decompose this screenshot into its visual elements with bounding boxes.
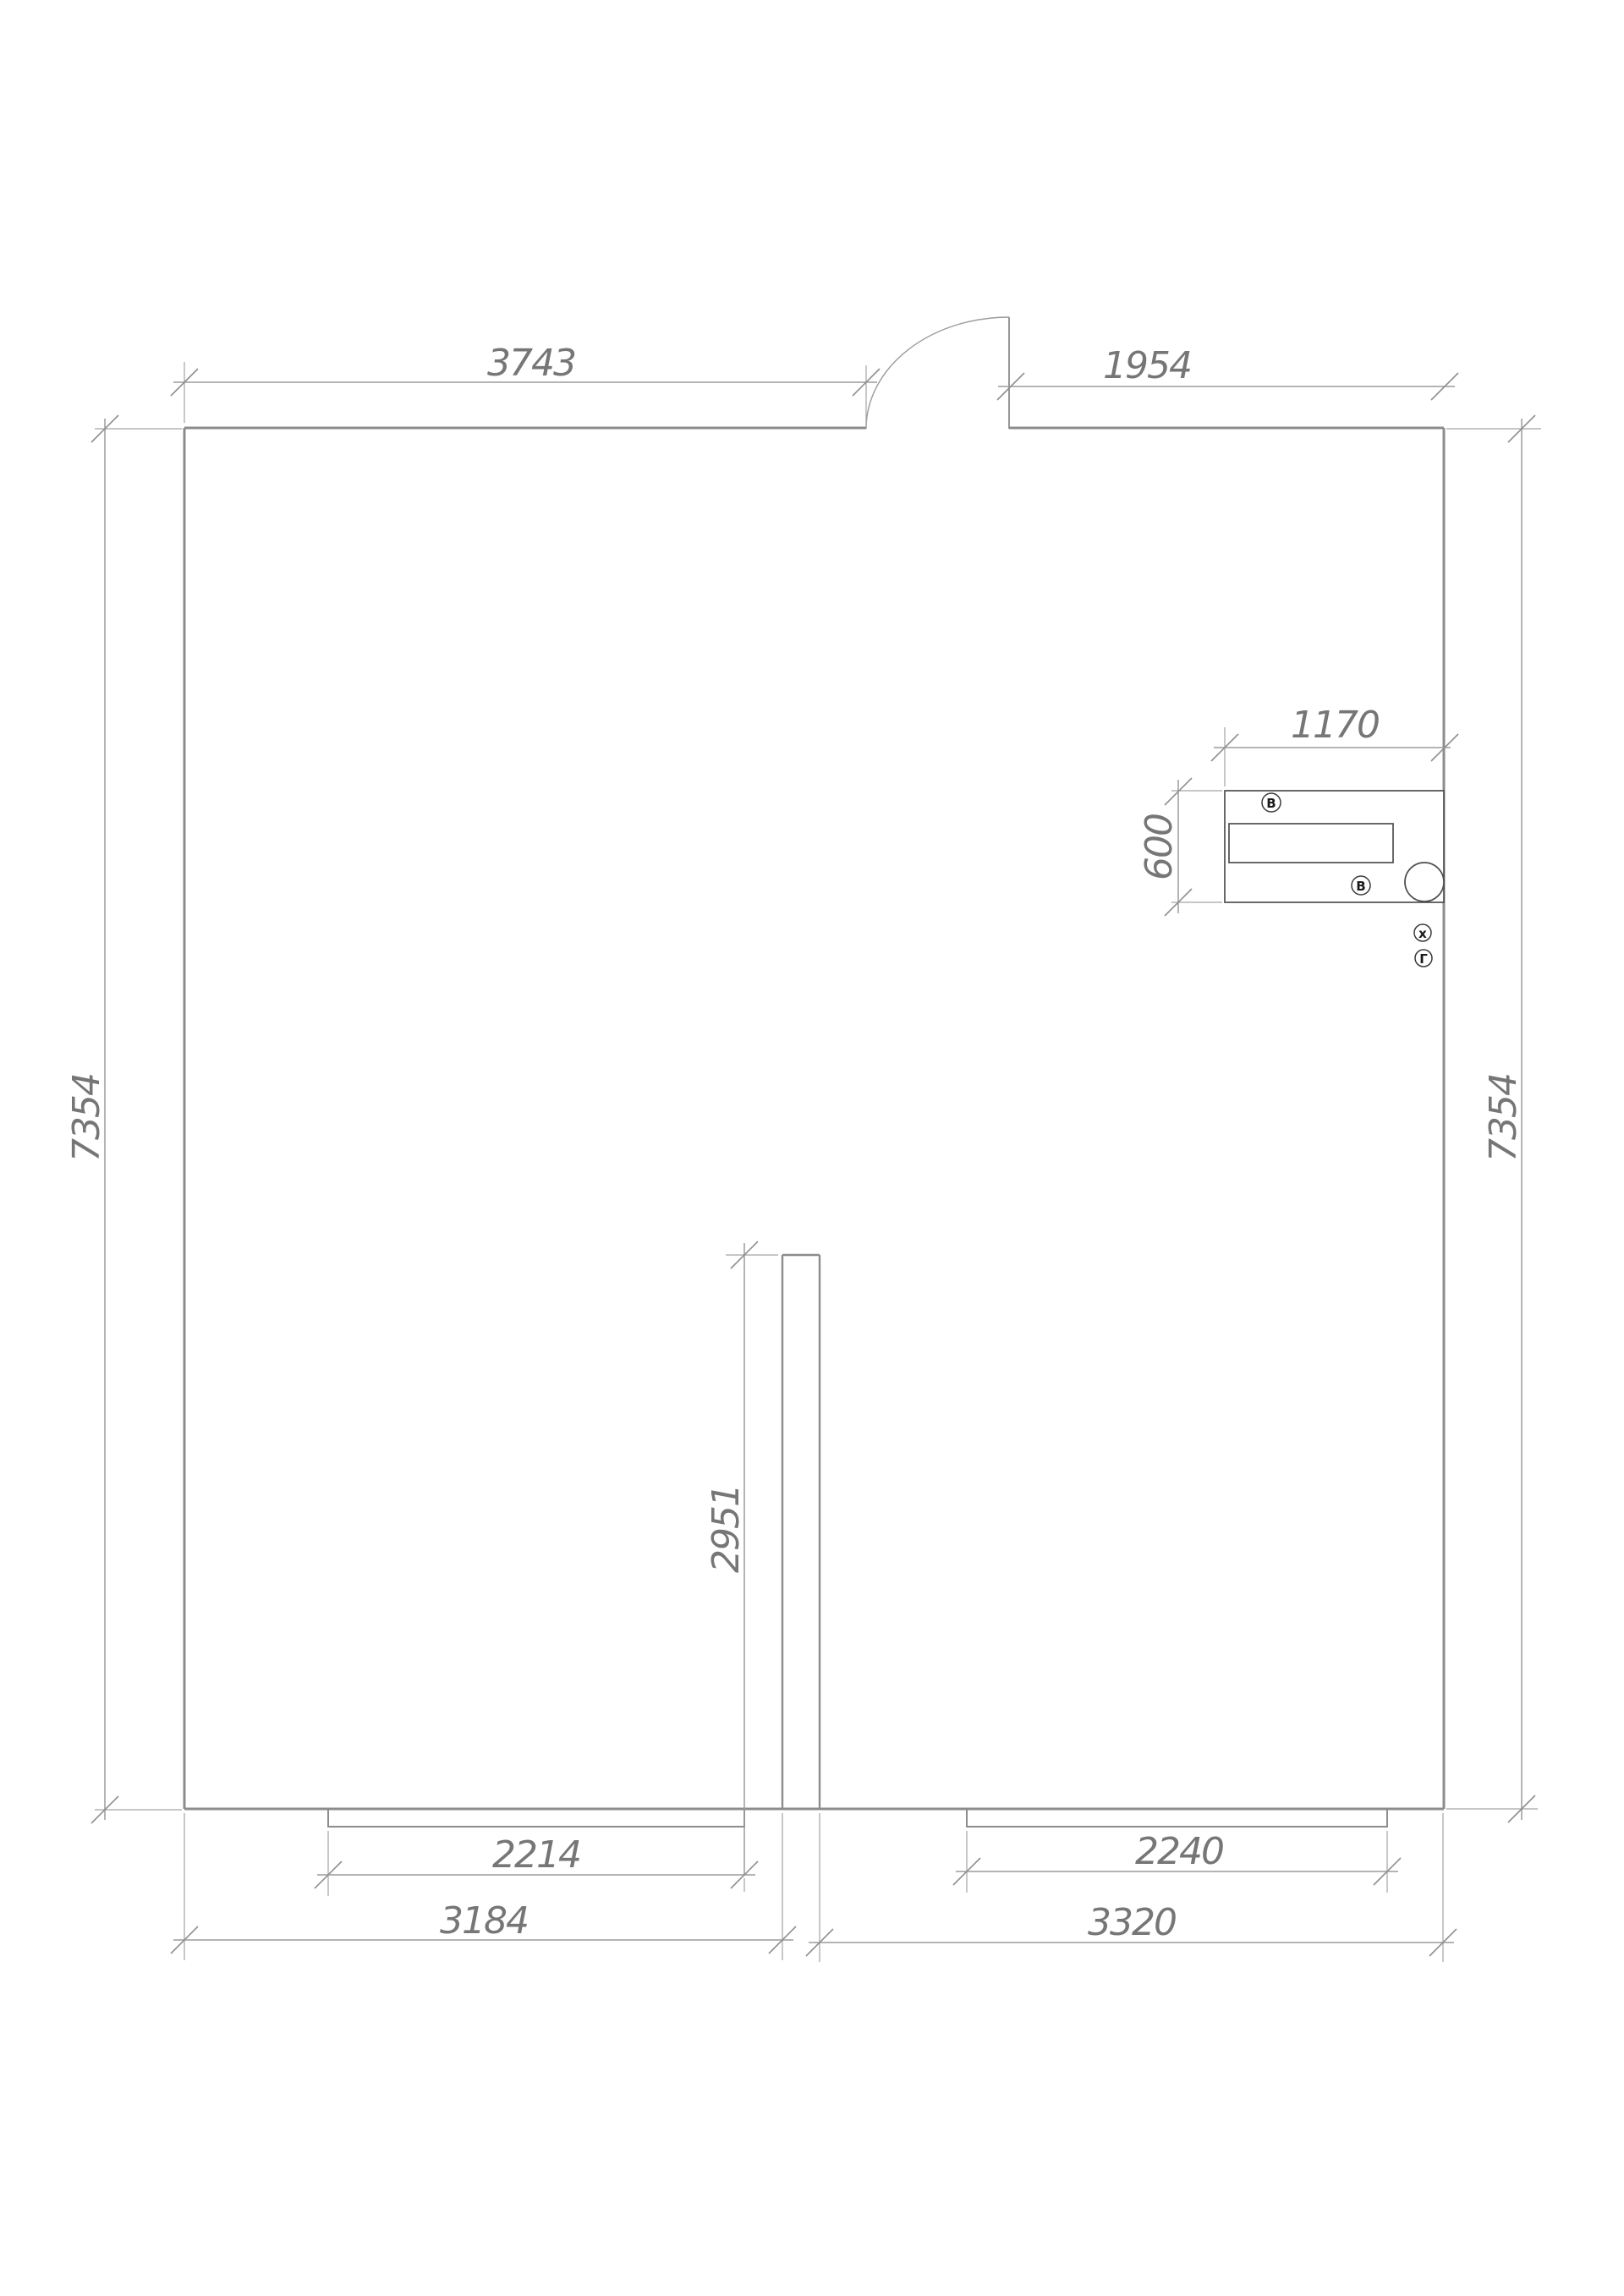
dim-label-left-wall: 7354 [65,1074,108,1162]
utility-marker-water-1: В [1262,793,1281,812]
dim-label-counter-depth: 600 [1138,814,1181,880]
marker-letter: Г [1419,951,1428,967]
dim-label-right-wall: 7354 [1482,1074,1525,1162]
dim-label-window-right: 2240 [1135,1830,1223,1873]
dimension-labels: 3743 1954 7354 7354 1170 600 2951 2214 3… [65,342,1525,1944]
dim-label-counter-width: 1170 [1291,704,1379,747]
burner-circle [1405,863,1444,901]
floor-plan-page: В В х Г 3743 1954 7354 7354 1170 600 295… [0,0,1624,2296]
door-swing-arc [866,317,1009,429]
sink-basin [1229,824,1393,863]
dim-label-partition: 2951 [705,1485,748,1573]
exterior-walls [184,428,1444,1809]
entrance-door [866,317,1009,429]
marker-letter: х [1418,926,1427,941]
window-sill-right [967,1809,1387,1827]
dimension-geometry [91,362,1541,1962]
floor-plan-canvas: В В х Г 3743 1954 7354 7354 1170 600 295… [0,0,1624,2296]
dim-label-window-left: 2214 [492,1833,580,1877]
dim-label-top-wall-left: 3743 [487,342,575,385]
utility-marker-gas: Г [1415,950,1432,967]
kitchen-counter [1225,791,1444,902]
windows [328,1809,1387,1827]
interior-partition [782,1255,820,1809]
dim-label-room-right: 3320 [1088,1901,1176,1944]
marker-letter: В [1356,879,1365,894]
window-sill-left [328,1809,744,1827]
dim-label-room-left: 3184 [440,1899,528,1943]
utility-marker-x: х [1414,924,1431,941]
dim-label-top-wall-right: 1954 [1103,344,1191,387]
marker-letter: В [1266,796,1276,811]
utility-marker-water-2: В [1352,876,1370,895]
